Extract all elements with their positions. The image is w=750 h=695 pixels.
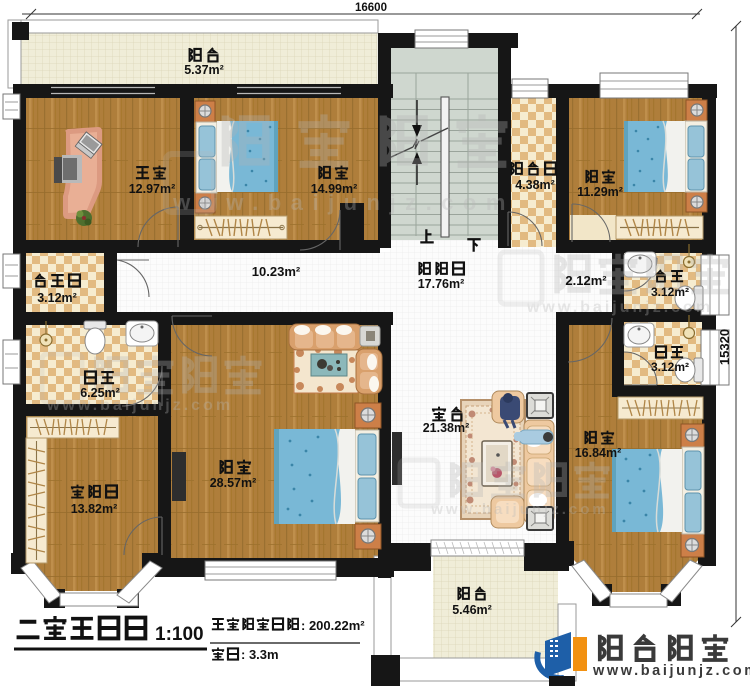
svg-text:: 200.22m²: : 200.22m² <box>301 618 365 633</box>
svg-text:15320: 15320 <box>717 329 732 365</box>
svg-text:4.38m²: 4.38m² <box>515 178 555 192</box>
svg-text:14.99m²: 14.99m² <box>311 182 358 196</box>
svg-text:21.38m²: 21.38m² <box>423 421 470 435</box>
svg-text:10.23m²: 10.23m² <box>252 264 301 279</box>
svg-text:16.84m²: 16.84m² <box>575 446 622 460</box>
svg-text:: 3.3m: : 3.3m <box>241 647 279 662</box>
svg-text:2.12m²: 2.12m² <box>565 273 607 288</box>
svg-text:3.12m²: 3.12m² <box>37 291 77 305</box>
svg-text:www.baijunjz.com: www.baijunjz.com <box>430 501 608 518</box>
svg-text:www.baijunjz.com: www.baijunjz.com <box>526 299 713 316</box>
svg-text:13.82m²: 13.82m² <box>71 502 118 516</box>
svg-text:11.29m²: 11.29m² <box>577 185 623 199</box>
svg-text:17.76m²: 17.76m² <box>418 277 465 291</box>
svg-text:www.baijunjz.com: www.baijunjz.com <box>592 663 750 679</box>
svg-text:www.baijunjz.com: www.baijunjz.com <box>46 397 233 414</box>
svg-text:28.57m²: 28.57m² <box>210 476 257 490</box>
svg-text:5.37m²: 5.37m² <box>184 63 224 77</box>
svg-text:1:100: 1:100 <box>155 624 204 645</box>
svg-text:3.12m²: 3.12m² <box>651 285 689 299</box>
svg-text:6.25m²: 6.25m² <box>80 386 120 400</box>
svg-text:3.12m²: 3.12m² <box>651 360 689 374</box>
svg-text:16600: 16600 <box>355 2 387 14</box>
svg-text:12.97m²: 12.97m² <box>129 182 176 196</box>
svg-text:5.46m²: 5.46m² <box>452 603 492 617</box>
